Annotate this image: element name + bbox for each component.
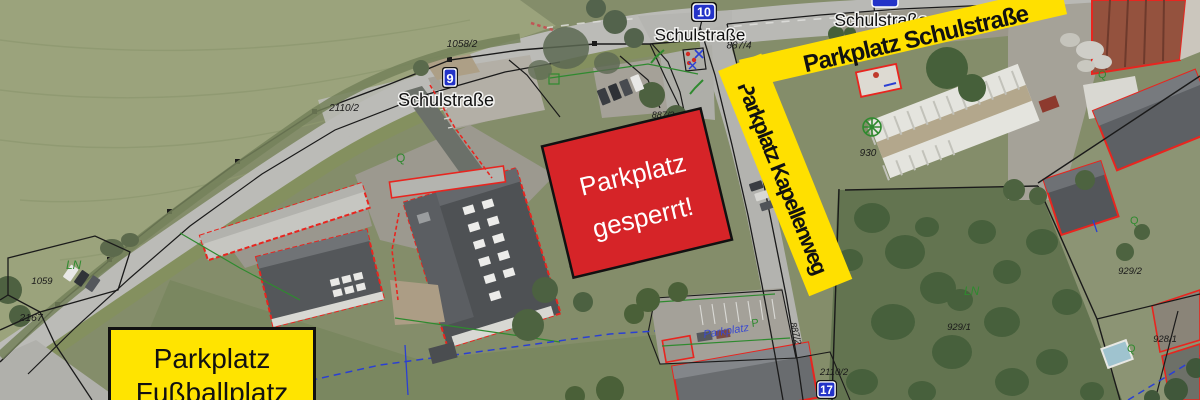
svg-text:2110/2: 2110/2	[328, 103, 359, 114]
svg-text:Q: Q	[1098, 69, 1107, 81]
svg-text:Schulstraße: Schulstraße	[398, 90, 494, 110]
svg-text:Q: Q	[396, 151, 405, 165]
svg-text:Schulstraße: Schulstraße	[655, 26, 746, 45]
svg-text:929/1: 929/1	[947, 322, 971, 333]
svg-text:930: 930	[860, 148, 877, 159]
svg-text:10: 10	[697, 6, 711, 20]
svg-text:LN: LN	[66, 258, 82, 272]
svg-text:Q: Q	[1130, 215, 1139, 227]
svg-text:2167: 2167	[18, 312, 44, 324]
svg-text:928/1: 928/1	[1153, 334, 1177, 345]
svg-text:Parkplatz: Parkplatz	[154, 343, 271, 374]
svg-text:LN: LN	[964, 284, 980, 298]
svg-text:17: 17	[820, 385, 833, 397]
svg-text:Q: Q	[1127, 343, 1136, 355]
svg-text:1059: 1059	[31, 276, 53, 287]
svg-text:2110/2: 2110/2	[819, 367, 849, 378]
svg-text:1058/2: 1058/2	[447, 39, 478, 50]
svg-text:9: 9	[446, 71, 453, 86]
svg-text:929/2: 929/2	[1118, 266, 1142, 277]
svg-text:Fußballplatz: Fußballplatz	[136, 377, 289, 400]
